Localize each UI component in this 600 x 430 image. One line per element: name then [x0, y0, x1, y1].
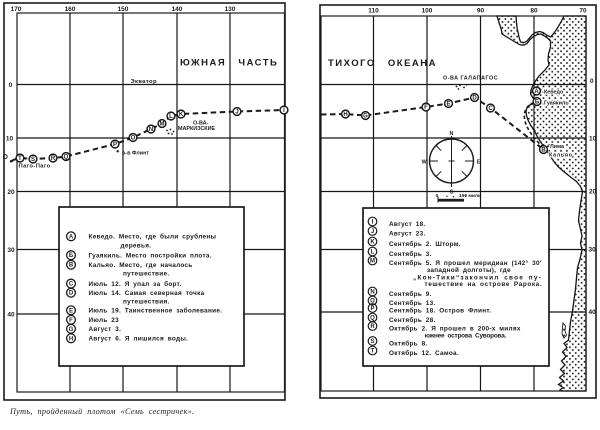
svg-text:Август 18.: Август 18. — [389, 221, 426, 228]
svg-text:A: A — [534, 89, 539, 95]
svg-text:20: 20 — [7, 189, 15, 196]
svg-text:D: D — [472, 96, 477, 102]
svg-text:0: 0 — [9, 82, 13, 89]
svg-text:Июль 23: Июль 23 — [89, 317, 120, 324]
svg-text:Лима: Лима — [550, 144, 565, 150]
svg-text:Сентябрь 2. Шторм.: Сентябрь 2. Шторм. — [389, 240, 461, 248]
svg-text:Август 3.: Август 3. — [89, 326, 122, 333]
svg-text:Август 6. Я лишился воды.: Август 6. Я лишился воды. — [89, 336, 189, 343]
svg-text:Июль 14. Самая северная точ: Июль 14. Самая северная точка — [89, 290, 205, 297]
svg-text:N: N — [370, 290, 374, 296]
svg-text:F: F — [69, 318, 73, 324]
svg-text:30: 30 — [7, 247, 15, 254]
svg-text:P: P — [113, 142, 117, 148]
svg-text:K: K — [179, 112, 184, 118]
svg-text:Q: Q — [64, 155, 69, 161]
svg-text:R: R — [51, 156, 56, 162]
svg-text:Паго-Паго: Паго-Паго — [19, 164, 51, 170]
svg-text:S: S — [31, 157, 35, 163]
svg-text:Сентябрь 28.: Сентябрь 28. — [389, 316, 436, 324]
svg-text:Сентябрь 13.: Сентябрь 13. — [389, 299, 436, 307]
svg-text:Август 23.: Август 23. — [389, 231, 426, 238]
svg-text:10: 10 — [6, 136, 14, 143]
svg-text:P: P — [370, 306, 374, 312]
svg-text:D: D — [69, 291, 74, 297]
svg-text:Кеведо: Кеведо — [544, 90, 564, 96]
svg-text:J: J — [235, 110, 238, 116]
svg-text:A: A — [69, 234, 74, 240]
svg-text:70: 70 — [579, 8, 587, 15]
svg-text:путешествие.: путешествие. — [123, 271, 169, 278]
svg-text:Гуаякиль: Гуаякиль — [544, 101, 569, 107]
svg-text:C: C — [488, 106, 493, 112]
svg-text:90: 90 — [477, 8, 485, 15]
svg-text:Экватор: Экватор — [131, 79, 157, 85]
svg-text:Сентябрь 18. Остров Флинт.: Сентябрь 18. Остров Флинт. — [389, 307, 491, 315]
svg-text:N: N — [450, 131, 454, 137]
svg-text:южнее острова Суворова.: южнее острова Суворова. — [425, 333, 507, 340]
svg-text:Q: Q — [370, 316, 375, 322]
svg-text:R: R — [370, 324, 375, 330]
svg-text:T: T — [371, 349, 375, 355]
svg-text:Сентябрь 9.: Сентябрь 9. — [389, 290, 432, 298]
svg-text:J: J — [371, 229, 374, 235]
svg-text:O: O — [131, 136, 136, 142]
svg-text:Октябрь 8.: Октябрь 8. — [389, 340, 428, 348]
svg-text:N: N — [149, 127, 153, 133]
svg-text:L: L — [371, 250, 375, 256]
svg-text:L: L — [169, 114, 173, 120]
svg-text:E: E — [446, 102, 450, 108]
svg-text:T: T — [18, 156, 22, 162]
svg-text:30: 30 — [589, 247, 597, 254]
svg-text:Кеведо. Место, где были сру: Кеведо. Место, где были срублены — [89, 233, 217, 241]
svg-text:Кальяо: Кальяо — [549, 153, 573, 159]
svg-text:G: G — [69, 327, 74, 333]
svg-text:110: 110 — [368, 8, 379, 15]
svg-text:160: 160 — [65, 6, 76, 13]
svg-text:Октябрь 12. Самоа.: Октябрь 12. Самоа. — [389, 349, 459, 357]
svg-text:S: S — [370, 339, 374, 345]
svg-text:ТИХОГО ОКЕАНА: ТИХОГО ОКЕАНА — [328, 58, 437, 69]
svg-text:Гуаякиль. Место постройки пл: Гуаякиль. Место постройки плота. — [89, 252, 212, 260]
svg-text:Сентябрь 5. Я прошел мериди: Сентябрь 5. Я прошел меридиан (142° 30′ — [389, 259, 542, 267]
svg-text:путешествия.: путешествия. — [123, 299, 170, 306]
svg-text:S: S — [450, 190, 454, 196]
svg-text:о-в Флинт: о-в Флинт — [122, 151, 149, 157]
svg-text:E: E — [477, 160, 481, 166]
svg-text:M: M — [370, 259, 375, 265]
svg-text:80: 80 — [530, 8, 538, 15]
svg-text:Июль 19. Таинственное заболе: Июль 19. Таинственное заболевание. — [89, 307, 223, 315]
svg-text:140: 140 — [172, 6, 183, 13]
svg-text:B: B — [69, 263, 74, 269]
svg-text:МАРКИЗСКИЕ: МАРКИЗСКИЕ — [178, 126, 215, 132]
svg-text:M: M — [160, 122, 165, 128]
svg-text:F: F — [424, 105, 428, 111]
svg-text:0: 0 — [590, 78, 594, 85]
svg-text:G: G — [363, 114, 368, 120]
svg-text:О-ВА ГАЛАПАГОС: О-ВА ГАЛАПАГОС — [443, 76, 498, 82]
svg-text:Путь, пройденный плотом «Се: Путь, пройденный плотом «Семь сестричек»… — [9, 407, 194, 416]
svg-text:H: H — [343, 112, 347, 118]
svg-text:западной долготы), где: западной долготы), где — [427, 266, 511, 274]
svg-text:130: 130 — [225, 6, 236, 13]
svg-text:K: K — [370, 240, 375, 246]
svg-text:ЮЖНАЯ ЧАСТЬ: ЮЖНАЯ ЧАСТЬ — [180, 58, 278, 69]
svg-text:Октябрь 2. Я прошел в 200: Октябрь 2. Я прошел в 200-х милях — [389, 325, 521, 333]
svg-text:170: 170 — [11, 6, 22, 13]
svg-text:B: B — [541, 148, 546, 154]
svg-text:тешествие на острове Рарока: тешествие на острове Рарока. — [425, 281, 543, 288]
svg-text:E: E — [69, 308, 73, 314]
svg-text:40: 40 — [7, 312, 15, 319]
svg-text:Б: Б — [69, 253, 74, 259]
svg-text:Кальяо. Место, где началось: Кальяо. Место, где началось — [89, 262, 193, 269]
svg-text:деревья.: деревья. — [121, 243, 152, 250]
svg-text:150 миль: 150 миль — [459, 193, 481, 199]
svg-text:H: H — [69, 336, 73, 342]
svg-text:Б: Б — [535, 100, 540, 106]
svg-text:40: 40 — [589, 309, 597, 316]
svg-text:O: O — [370, 299, 375, 305]
svg-text:C: C — [69, 282, 74, 288]
svg-text:100: 100 — [422, 8, 433, 15]
svg-text:Сентябрь 3.: Сентябрь 3. — [389, 250, 432, 258]
svg-text:10: 10 — [589, 136, 597, 143]
svg-text:150: 150 — [118, 6, 129, 13]
svg-text:20: 20 — [589, 189, 597, 196]
svg-text:Июль 12. Я упал за борт.: Июль 12. Я упал за борт. — [89, 280, 182, 288]
